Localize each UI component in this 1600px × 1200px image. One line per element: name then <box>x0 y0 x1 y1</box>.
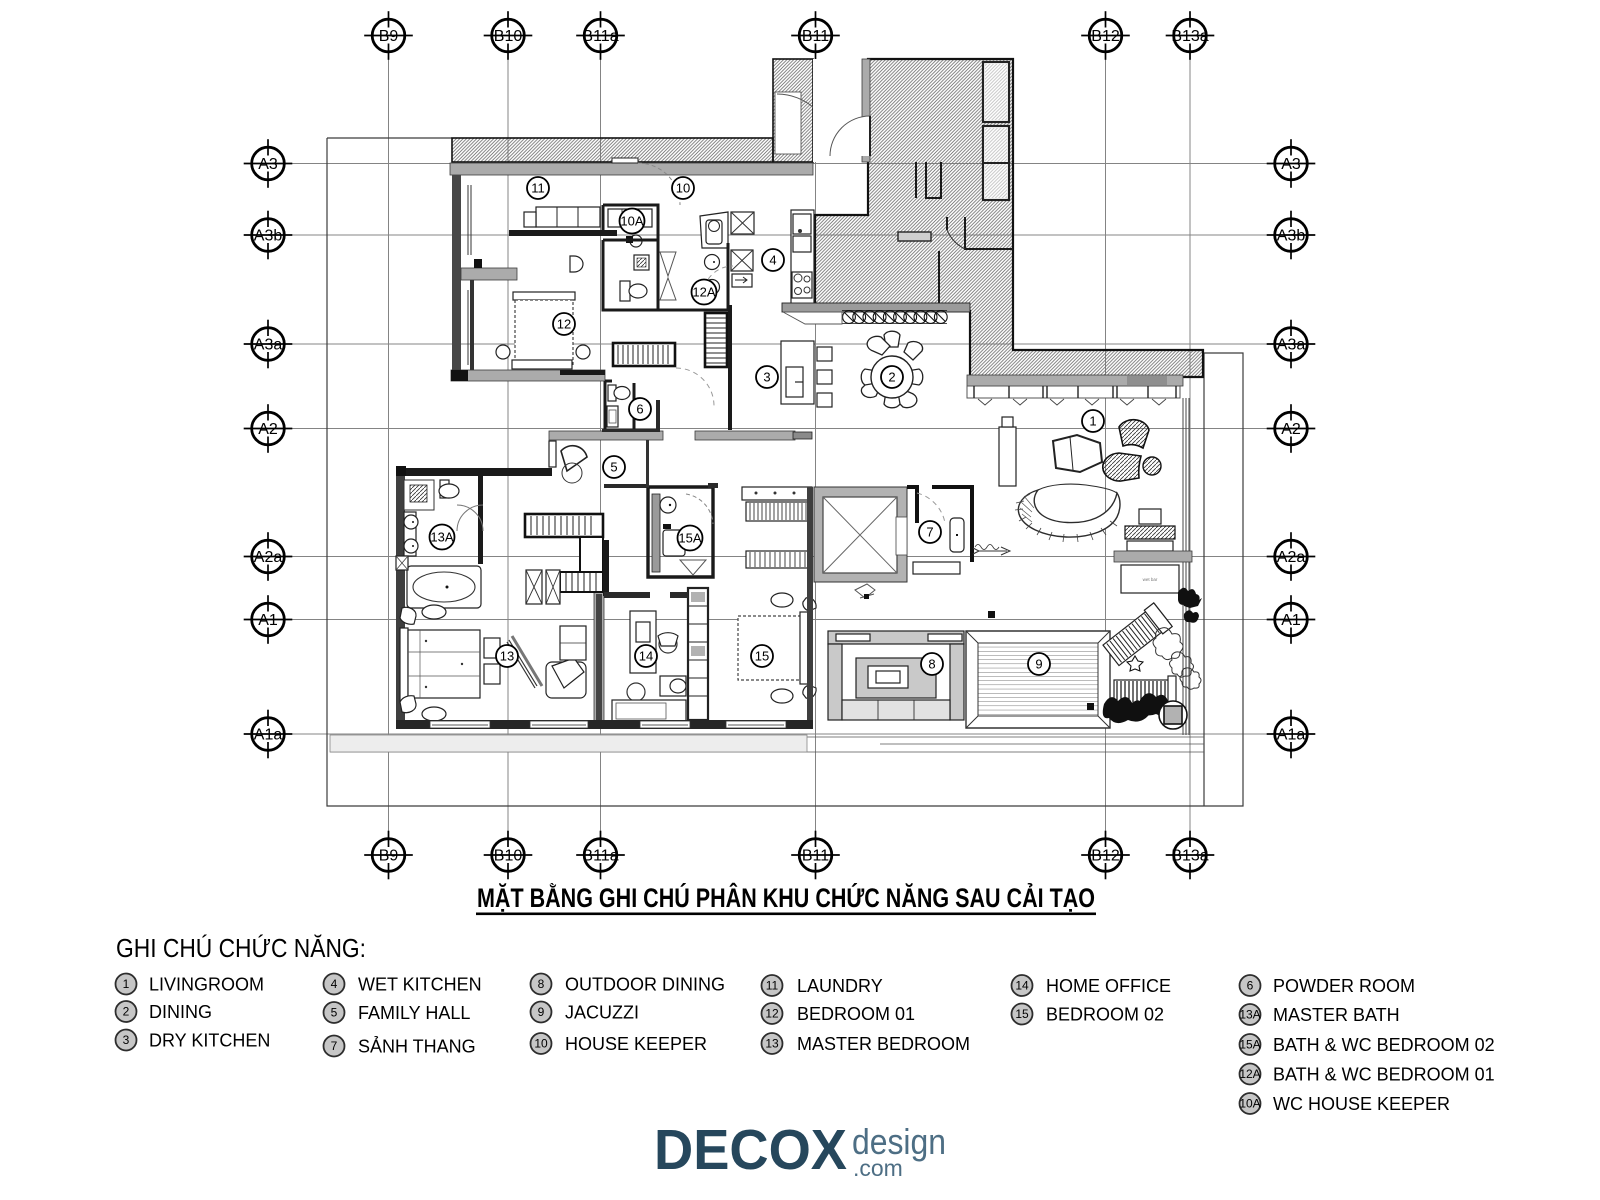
svg-text:A3b: A3b <box>1277 228 1306 245</box>
svg-text:DINING: DINING <box>149 1002 212 1022</box>
svg-text:4: 4 <box>331 977 338 991</box>
svg-text:4: 4 <box>769 253 776 268</box>
svg-text:B13a: B13a <box>1171 28 1208 45</box>
svg-text:wet bar: wet bar <box>1143 577 1158 582</box>
svg-text:15: 15 <box>1015 1007 1029 1021</box>
svg-text:SẢNH THANG: SẢNH THANG <box>358 1036 476 1057</box>
svg-text:BATH & WC BEDROOM 01: BATH & WC BEDROOM 01 <box>1273 1065 1495 1085</box>
svg-text:BATH & WC BEDROOM 02: BATH & WC BEDROOM 02 <box>1273 1035 1495 1055</box>
svg-text:9: 9 <box>538 1005 545 1019</box>
svg-text:B13a: B13a <box>1171 848 1208 865</box>
svg-text:15A: 15A <box>1239 1038 1260 1052</box>
svg-text:B11a: B11a <box>582 28 618 45</box>
svg-text:5: 5 <box>610 460 617 475</box>
svg-text:2: 2 <box>888 370 895 385</box>
svg-text:5: 5 <box>331 1006 338 1020</box>
svg-text:FAMILY HALL: FAMILY HALL <box>358 1003 470 1023</box>
svg-text:13A: 13A <box>430 530 453 545</box>
svg-text:8: 8 <box>928 657 935 672</box>
svg-text:BEDROOM 01: BEDROOM 01 <box>797 1004 915 1024</box>
svg-text:9: 9 <box>1035 657 1042 672</box>
svg-text:A2: A2 <box>258 421 278 438</box>
svg-text:GHI CHÚ CHỨC NĂNG:: GHI CHÚ CHỨC NĂNG: <box>116 933 366 963</box>
svg-text:3: 3 <box>123 1033 130 1047</box>
svg-text:11: 11 <box>531 181 545 196</box>
svg-text:13: 13 <box>765 1037 779 1051</box>
svg-text:10: 10 <box>676 181 690 196</box>
svg-text:6: 6 <box>636 402 643 417</box>
svg-text:13: 13 <box>500 649 514 664</box>
svg-text:A2: A2 <box>1281 421 1301 438</box>
svg-text:10A: 10A <box>1239 1097 1260 1111</box>
svg-text:A1: A1 <box>258 612 278 629</box>
svg-text:12A: 12A <box>692 285 715 300</box>
svg-text:WC HOUSE KEEPER: WC HOUSE KEEPER <box>1273 1094 1450 1114</box>
svg-text:A1a: A1a <box>254 727 283 744</box>
svg-text:7: 7 <box>331 1039 338 1053</box>
svg-text:15A: 15A <box>678 531 701 546</box>
svg-text:B10: B10 <box>494 28 523 45</box>
svg-text:11: 11 <box>766 979 779 993</box>
svg-text:B11: B11 <box>802 848 829 865</box>
svg-text:8: 8 <box>538 977 545 991</box>
svg-text:10A: 10A <box>620 214 643 229</box>
svg-text:A2a: A2a <box>1277 549 1306 566</box>
svg-text:BEDROOM 02: BEDROOM 02 <box>1046 1005 1164 1025</box>
svg-text:14: 14 <box>1015 979 1029 993</box>
svg-text:12: 12 <box>557 317 571 332</box>
svg-text:JACUZZI: JACUZZI <box>565 1003 639 1023</box>
svg-text:6: 6 <box>1247 979 1254 993</box>
svg-text:LIVINGROOM: LIVINGROOM <box>149 975 264 995</box>
svg-text:LAUNDRY: LAUNDRY <box>797 976 883 996</box>
svg-text:1: 1 <box>123 977 130 991</box>
svg-text:B12: B12 <box>1091 28 1120 45</box>
svg-text:B9: B9 <box>379 28 399 45</box>
svg-text:10: 10 <box>534 1037 548 1051</box>
svg-text:B10: B10 <box>494 848 523 865</box>
svg-text:B11: B11 <box>802 28 829 45</box>
svg-text:POWDER ROOM: POWDER ROOM <box>1273 976 1415 996</box>
svg-text:A1: A1 <box>1281 612 1301 629</box>
svg-text:7: 7 <box>926 525 933 540</box>
svg-text:B12: B12 <box>1091 848 1120 865</box>
svg-text:A3b: A3b <box>254 228 283 245</box>
svg-text:MASTER BATH: MASTER BATH <box>1273 1005 1400 1025</box>
svg-text:HOUSE KEEPER: HOUSE KEEPER <box>565 1034 707 1054</box>
svg-text:12: 12 <box>765 1007 779 1021</box>
svg-text:12A: 12A <box>1239 1067 1260 1081</box>
svg-text:.com: .com <box>853 1155 903 1181</box>
svg-text:DRY KITCHEN: DRY KITCHEN <box>149 1031 270 1051</box>
svg-text:1: 1 <box>1089 414 1096 429</box>
svg-text:B11a: B11a <box>582 848 618 865</box>
svg-text:B9: B9 <box>379 848 399 865</box>
svg-text:WET KITCHEN: WET KITCHEN <box>358 975 482 995</box>
svg-text:MASTER BEDROOM: MASTER BEDROOM <box>797 1034 970 1054</box>
svg-text:DECOX: DECOX <box>654 1118 847 1182</box>
svg-text:A1a: A1a <box>1277 727 1306 744</box>
svg-text:MẶT BẰNG GHI CHÚ PHÂN KHU CHỨC: MẶT BẰNG GHI CHÚ PHÂN KHU CHỨC NĂNG SAU … <box>477 881 1095 913</box>
svg-text:14: 14 <box>639 649 653 664</box>
svg-text:3: 3 <box>763 370 770 385</box>
svg-text:A3: A3 <box>258 156 278 173</box>
svg-text:13A: 13A <box>1239 1008 1260 1022</box>
svg-text:2: 2 <box>123 1005 130 1019</box>
svg-text:15: 15 <box>755 649 769 664</box>
svg-text:A2a: A2a <box>254 549 283 566</box>
svg-text:HOME OFFICE: HOME OFFICE <box>1046 976 1171 996</box>
svg-text:A3a: A3a <box>1277 337 1306 354</box>
svg-text:OUTDOOR DINING: OUTDOOR DINING <box>565 975 725 995</box>
svg-text:A3: A3 <box>1281 156 1301 173</box>
svg-text:A3a: A3a <box>254 337 283 354</box>
